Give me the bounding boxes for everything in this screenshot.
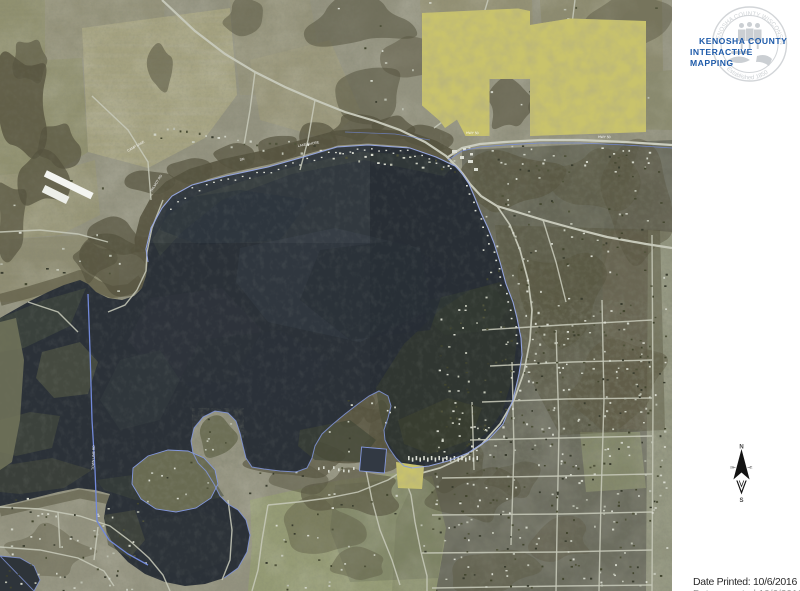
svg-text:S: S [739,498,743,504]
svg-text:HWY 50: HWY 50 [598,135,611,139]
svg-text:HWY 50: HWY 50 [466,131,479,135]
